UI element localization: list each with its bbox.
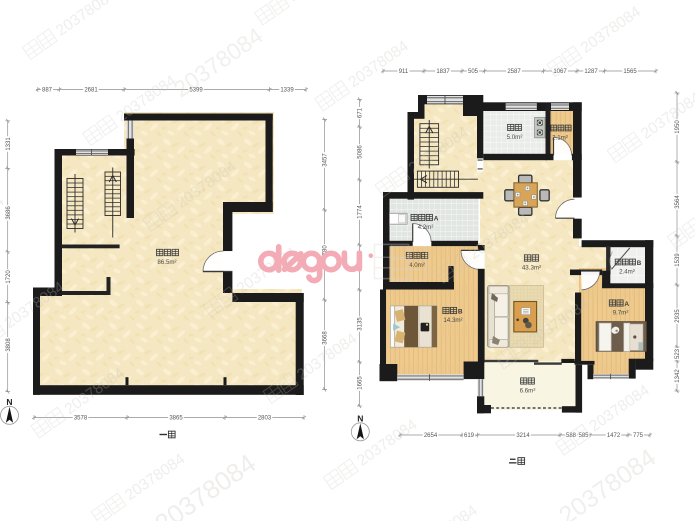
svg-text:887: 887 xyxy=(42,88,53,94)
svg-text:775: 775 xyxy=(633,433,644,439)
svg-text:B: B xyxy=(458,308,463,315)
svg-text:B: B xyxy=(637,260,642,267)
svg-text:2935: 2935 xyxy=(675,309,681,323)
svg-text:1665: 1665 xyxy=(358,376,364,390)
svg-text:3564: 3564 xyxy=(675,195,681,209)
svg-text:86.5m²: 86.5m² xyxy=(157,259,176,266)
svg-text:1565: 1565 xyxy=(623,69,637,75)
svg-text:619: 619 xyxy=(464,433,475,439)
svg-text:1720: 1720 xyxy=(6,270,12,284)
svg-text:2.1m²: 2.1m² xyxy=(552,135,568,142)
svg-text:1339: 1339 xyxy=(280,88,294,94)
svg-text:1539: 1539 xyxy=(675,253,681,267)
svg-text:671: 671 xyxy=(358,107,364,118)
svg-text:3686: 3686 xyxy=(6,206,12,220)
svg-text:14.3m²: 14.3m² xyxy=(443,317,462,324)
svg-text:5086: 5086 xyxy=(358,145,364,159)
svg-text:N: N xyxy=(6,397,12,407)
svg-text:6.6m²: 6.6m² xyxy=(520,388,536,395)
svg-text:3808: 3808 xyxy=(6,338,12,352)
svg-text:2681: 2681 xyxy=(84,88,98,94)
svg-text:2803: 2803 xyxy=(258,416,272,422)
svg-text:4.2m²: 4.2m² xyxy=(418,224,434,231)
svg-text:1837: 1837 xyxy=(436,69,450,75)
svg-text:1342: 1342 xyxy=(675,369,681,383)
svg-text:523: 523 xyxy=(675,348,681,359)
svg-text:911: 911 xyxy=(399,69,409,75)
svg-text:3578: 3578 xyxy=(74,416,88,422)
svg-text:3214: 3214 xyxy=(516,433,530,439)
svg-text:2587: 2587 xyxy=(507,69,521,75)
svg-text:2654: 2654 xyxy=(424,433,438,439)
svg-text:A: A xyxy=(434,215,439,222)
svg-text:3135: 3135 xyxy=(358,317,364,331)
svg-text:1331: 1331 xyxy=(6,137,12,151)
svg-text:4.0m²: 4.0m² xyxy=(409,262,425,269)
svg-text:1472: 1472 xyxy=(607,433,621,439)
svg-text:2.4m²: 2.4m² xyxy=(619,269,635,276)
svg-text:43.3m²: 43.3m² xyxy=(522,265,541,272)
svg-text:3668: 3668 xyxy=(323,331,329,345)
svg-text:5.0m²: 5.0m² xyxy=(507,134,523,141)
svg-text:A: A xyxy=(624,301,629,308)
svg-text:9.7m²: 9.7m² xyxy=(613,310,629,317)
svg-text:3865: 3865 xyxy=(169,416,183,422)
svg-text:3457: 3457 xyxy=(323,153,329,167)
svg-text:505: 505 xyxy=(468,69,479,75)
svg-text:1287: 1287 xyxy=(584,69,598,75)
svg-text:1774: 1774 xyxy=(358,205,364,219)
svg-text:N: N xyxy=(357,413,363,423)
